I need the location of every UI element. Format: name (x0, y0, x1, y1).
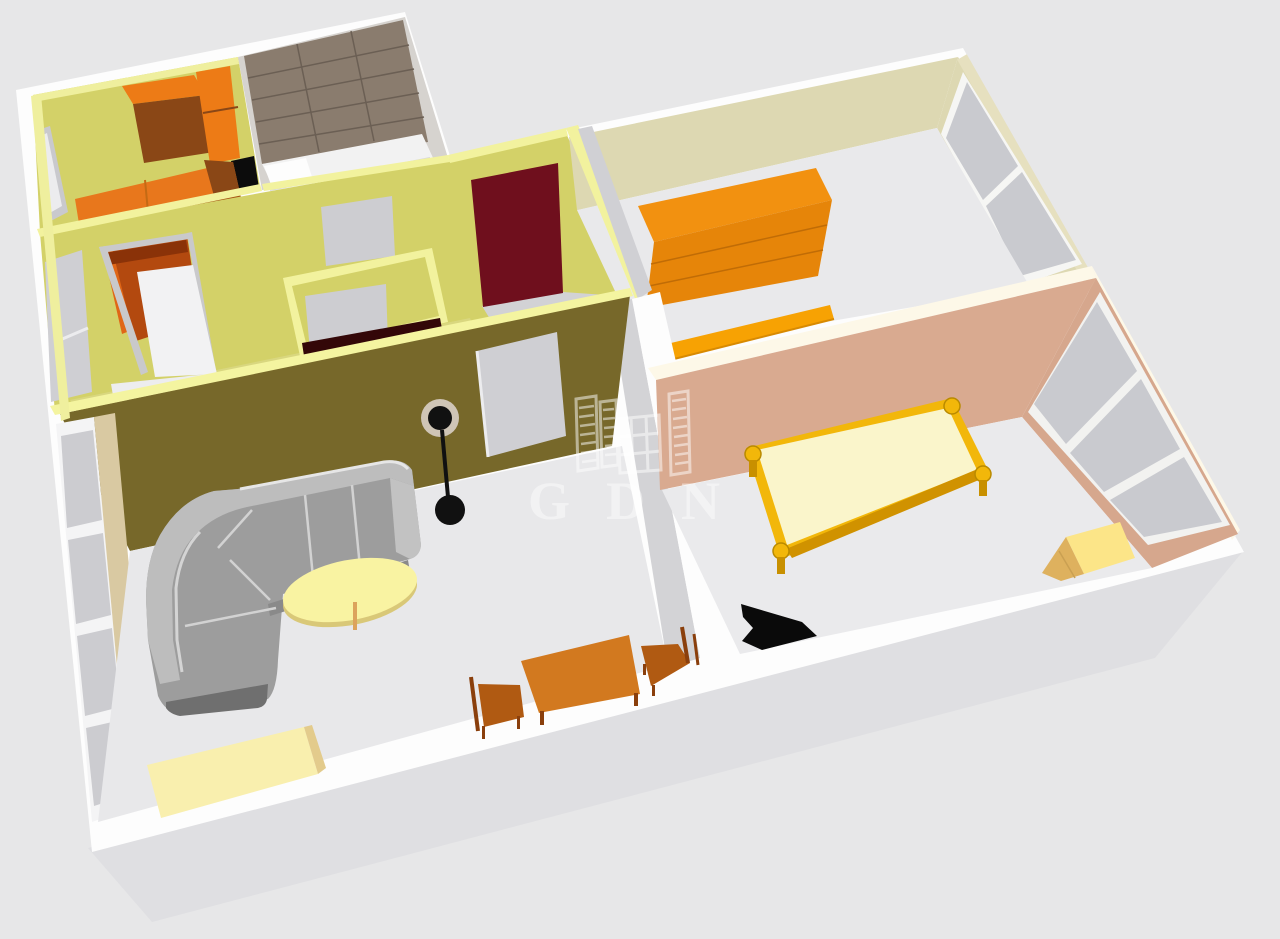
svg-text:GDN: GDN (528, 471, 756, 531)
